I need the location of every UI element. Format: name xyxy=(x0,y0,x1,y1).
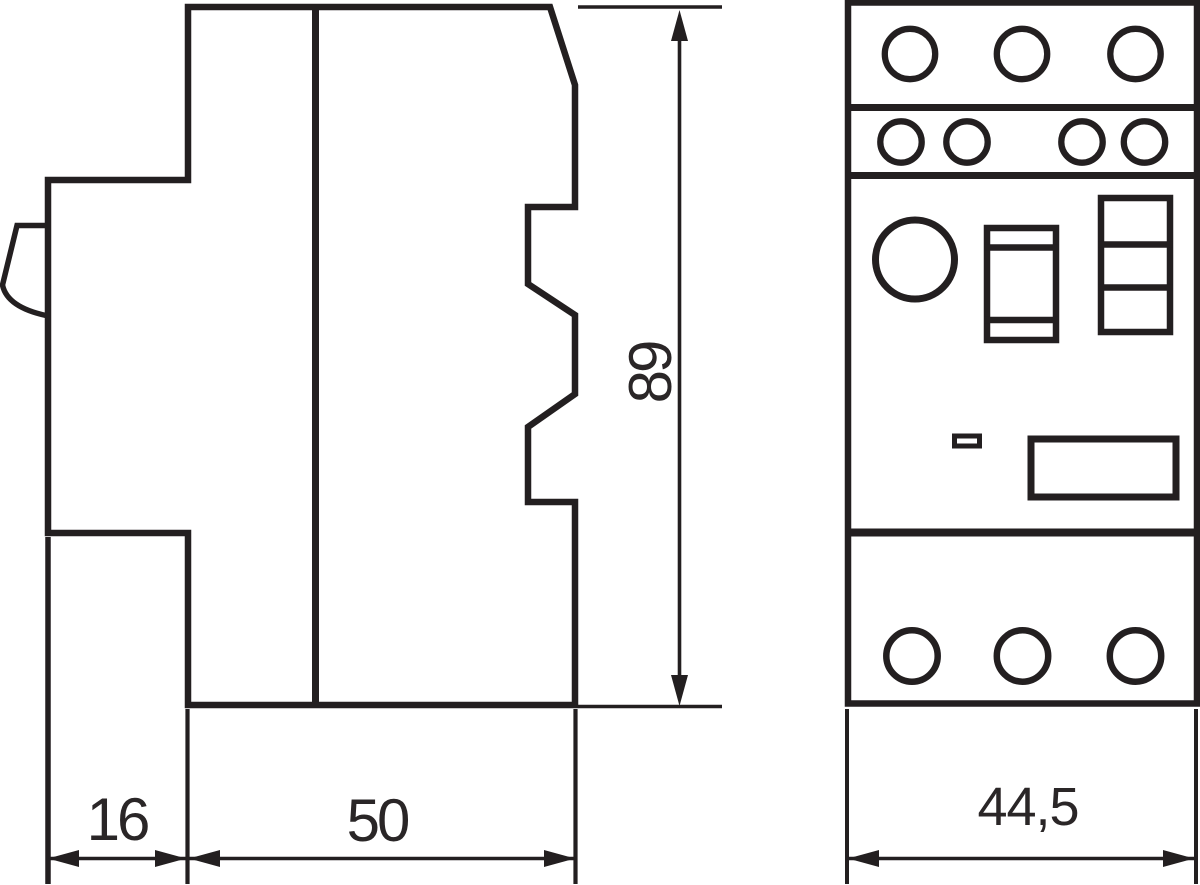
svg-text:44,5: 44,5 xyxy=(977,777,1078,837)
svg-text:89: 89 xyxy=(617,342,684,403)
svg-text:50: 50 xyxy=(347,787,409,854)
svg-text:16: 16 xyxy=(87,786,148,853)
